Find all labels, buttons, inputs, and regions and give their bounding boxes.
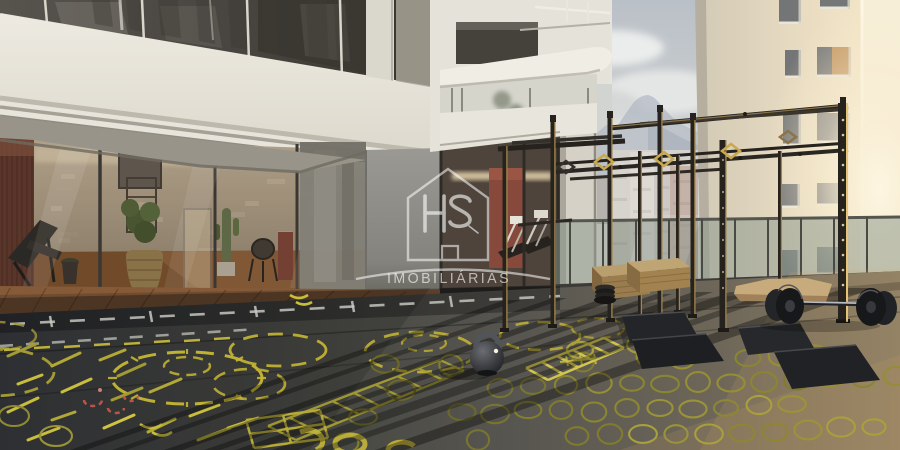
svg-text:IMOBILIÁRIAS: IMOBILIÁRIAS (387, 270, 511, 287)
